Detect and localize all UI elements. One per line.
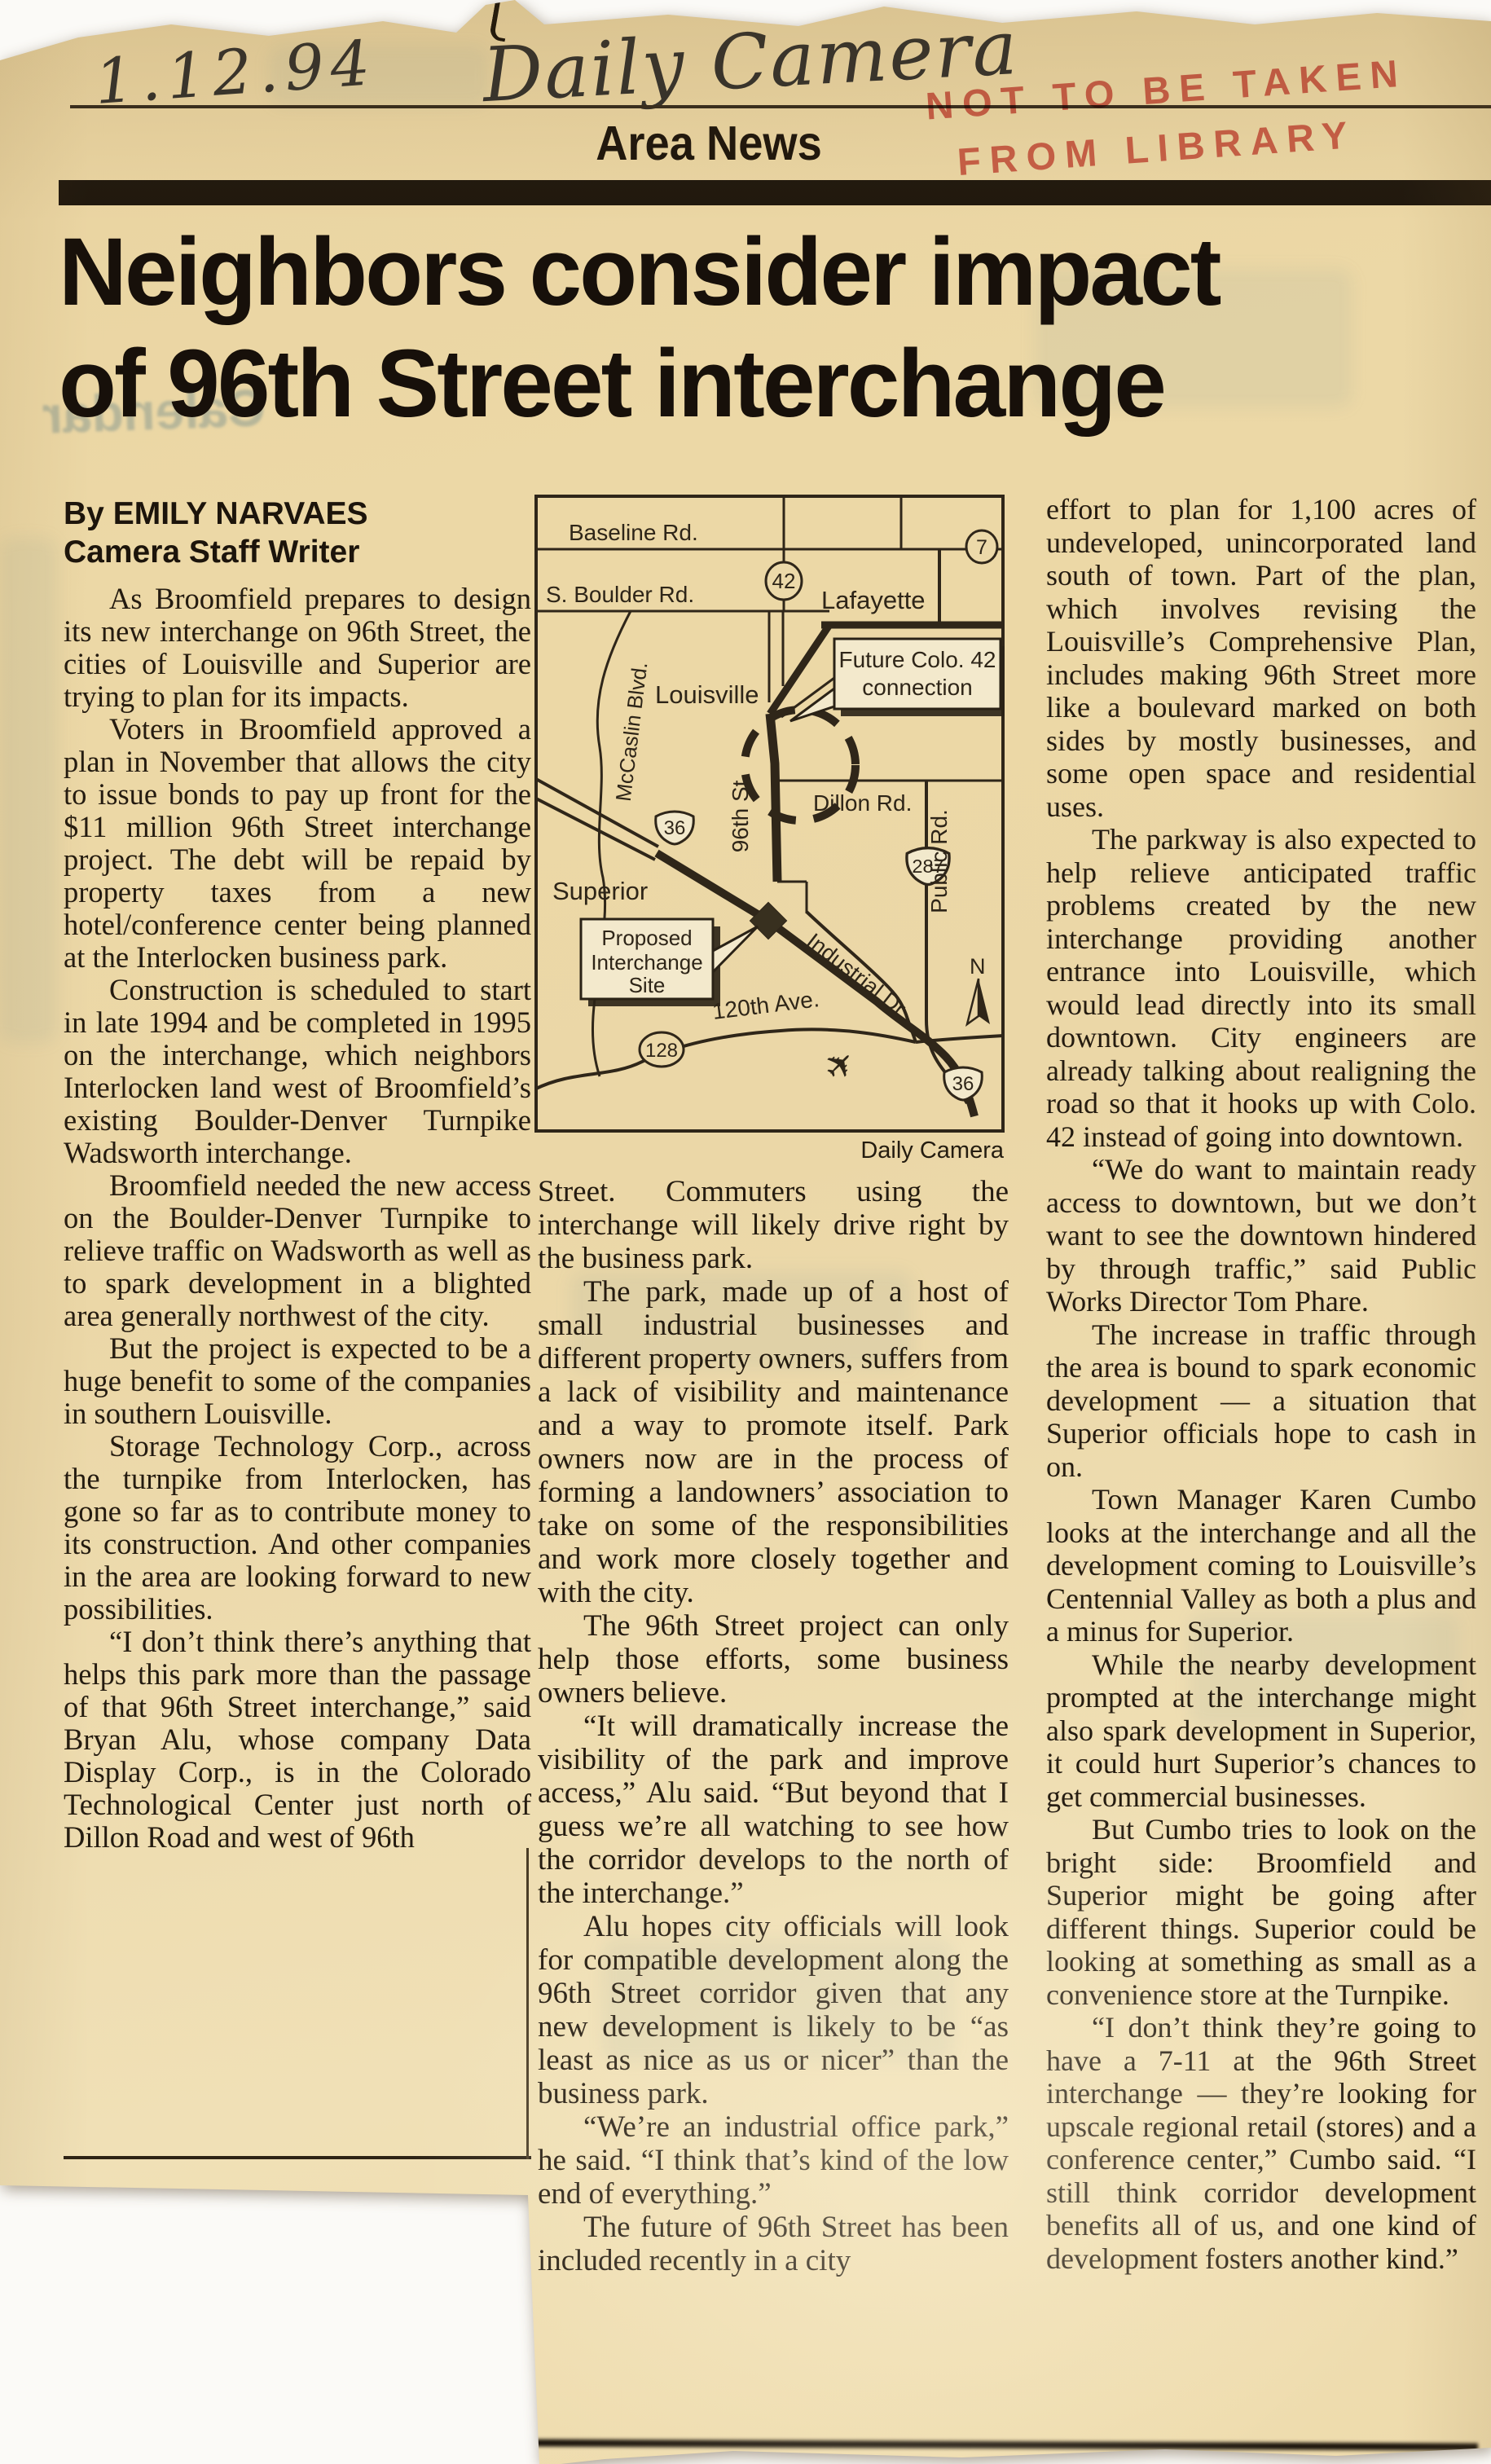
route-36-label: 36 bbox=[664, 817, 686, 839]
byline-author: By EMILY NARVAES bbox=[64, 495, 531, 533]
article-paragraph: The 96th Street project can only help th… bbox=[538, 1609, 1009, 1709]
clipping-bottom-edge bbox=[512, 2439, 1478, 2450]
column1-side-rule bbox=[526, 1848, 529, 2159]
label-s-boulder-rd: S. Boulder Rd. bbox=[546, 582, 694, 607]
article-column-3: effort to plan for 1,100 acres of undeve… bbox=[1046, 493, 1476, 2275]
callout-proposed-site: Proposed Interchange Site bbox=[581, 919, 758, 1006]
map-figure: Future Colo. 42 connection Proposed Inte… bbox=[534, 495, 1005, 1133]
label-superior: Superior bbox=[552, 877, 648, 905]
callout-text: Future Colo. 42 bbox=[839, 647, 996, 672]
scanned-newspaper-page: Calendar 1.12.94 Daily Camera NOT TO BE … bbox=[0, 0, 1491, 2464]
callout-text: Proposed bbox=[601, 926, 692, 950]
article-paragraph: Broomfield needed the new access on the … bbox=[64, 1169, 531, 1332]
map-credit: Daily Camera bbox=[779, 1137, 1004, 1164]
article-paragraph: But Cumbo tries to look on the bright si… bbox=[1046, 1813, 1476, 2011]
article-paragraph: “I don’t think there’s anything that hel… bbox=[64, 1626, 531, 1854]
label-louisville: Louisville bbox=[655, 680, 759, 709]
article-column-2: Street. Commuters using the interchange … bbox=[538, 1175, 1009, 2277]
label-baseline-rd: Baseline Rd. bbox=[569, 520, 698, 545]
road-96th-st bbox=[770, 714, 777, 882]
newspaper-clipping: Calendar 1.12.94 Daily Camera NOT TO BE … bbox=[0, 0, 1491, 2464]
article-paragraph: The increase in traffic through the area… bbox=[1046, 1318, 1476, 1484]
road-120th-ave bbox=[534, 1029, 1004, 1089]
masthead-bar bbox=[59, 180, 1491, 205]
route-42-label: 42 bbox=[772, 569, 796, 593]
route-7-label: 7 bbox=[976, 536, 987, 559]
headline-line2: of 96th Street interchange bbox=[59, 330, 1164, 438]
road-turnpike-divided bbox=[534, 778, 658, 860]
label-lafayette: Lafayette bbox=[821, 586, 926, 614]
byline-title: Camera Staff Writer bbox=[64, 533, 531, 571]
airport-icon: ✈ bbox=[816, 1041, 865, 1090]
callout-text: connection bbox=[862, 675, 972, 700]
column1-end-rule bbox=[64, 2156, 531, 2159]
article-paragraph: While the nearby development prompted at… bbox=[1046, 1648, 1476, 1814]
section-header: Area News bbox=[536, 116, 881, 171]
label-public-rd: Public Rd. bbox=[926, 809, 952, 913]
us-36-shield-west: 36 bbox=[656, 812, 694, 844]
article-paragraph: Construction is scheduled to start in la… bbox=[64, 974, 531, 1169]
article-paragraph: Voters in Broomfield approved a plan in … bbox=[64, 713, 531, 974]
callout-text: Interchange bbox=[591, 950, 702, 975]
article-paragraph: “It will dramatically increase the visib… bbox=[538, 1709, 1009, 1910]
article-column-1: By EMILY NARVAES Camera Staff Writer As … bbox=[64, 495, 531, 1854]
route-128-label: 128 bbox=[645, 1040, 678, 1062]
north-arrow-left bbox=[967, 979, 979, 1024]
headline-line1: Neighbors consider impact bbox=[59, 218, 1220, 326]
article-paragraph: But the project is expected to be a huge… bbox=[64, 1332, 531, 1430]
article-paragraph: Alu hopes city officials will look for c… bbox=[538, 1910, 1009, 2110]
article-paragraph: The park, made up of a host of small ind… bbox=[538, 1275, 1009, 1609]
article-paragraph: Town Manager Karen Cumbo looks at the in… bbox=[1046, 1483, 1476, 1648]
clipping-shadow-wrap: Calendar 1.12.94 Daily Camera NOT TO BE … bbox=[0, 0, 1491, 2464]
label-dillon-rd: Dillon Rd. bbox=[813, 790, 912, 816]
route-36-label: 36 bbox=[952, 1073, 974, 1095]
article-paragraph: The future of 96th Street has been inclu… bbox=[538, 2211, 1009, 2277]
north-arrow-icon: N bbox=[967, 954, 990, 1024]
article-paragraph: “We’re an industrial office park,” he sa… bbox=[538, 2110, 1009, 2211]
article-paragraph: “We do want to maintain ready access to … bbox=[1046, 1153, 1476, 1318]
article-paragraph: The parkway is also expected to help rel… bbox=[1046, 823, 1476, 1153]
label-mccaslin-blvd: McCaslin Blvd. bbox=[611, 661, 653, 803]
label-96th-st: 96th St. bbox=[728, 774, 753, 853]
article-paragraph: Street. Commuters using the interchange … bbox=[538, 1175, 1009, 1275]
callout-text: Site bbox=[629, 973, 666, 997]
article-paragraph: As Broomfield prepares to design its new… bbox=[64, 583, 531, 713]
article-paragraph: “I don’t think they’re going to have a 7… bbox=[1046, 2011, 1476, 2275]
page-title: Neighbors consider impactof 96th Street … bbox=[59, 217, 1459, 440]
article-paragraph: effort to plan for 1,100 acres of undeve… bbox=[1046, 493, 1476, 823]
ghost-patch bbox=[0, 538, 57, 1043]
road-96th-jog bbox=[777, 882, 807, 913]
callout-future-connection: Future Colo. 42 connection bbox=[790, 639, 1005, 721]
us-36-shield-south: 36 bbox=[944, 1067, 983, 1100]
north-arrow-right bbox=[979, 979, 990, 1024]
locator-map: Future Colo. 42 connection Proposed Inte… bbox=[534, 495, 1005, 1133]
article-paragraph: Storage Technology Corp., across the tur… bbox=[64, 1430, 531, 1626]
north-label: N bbox=[970, 954, 986, 979]
label-120th-ave: 120th Ave. bbox=[711, 986, 821, 1024]
